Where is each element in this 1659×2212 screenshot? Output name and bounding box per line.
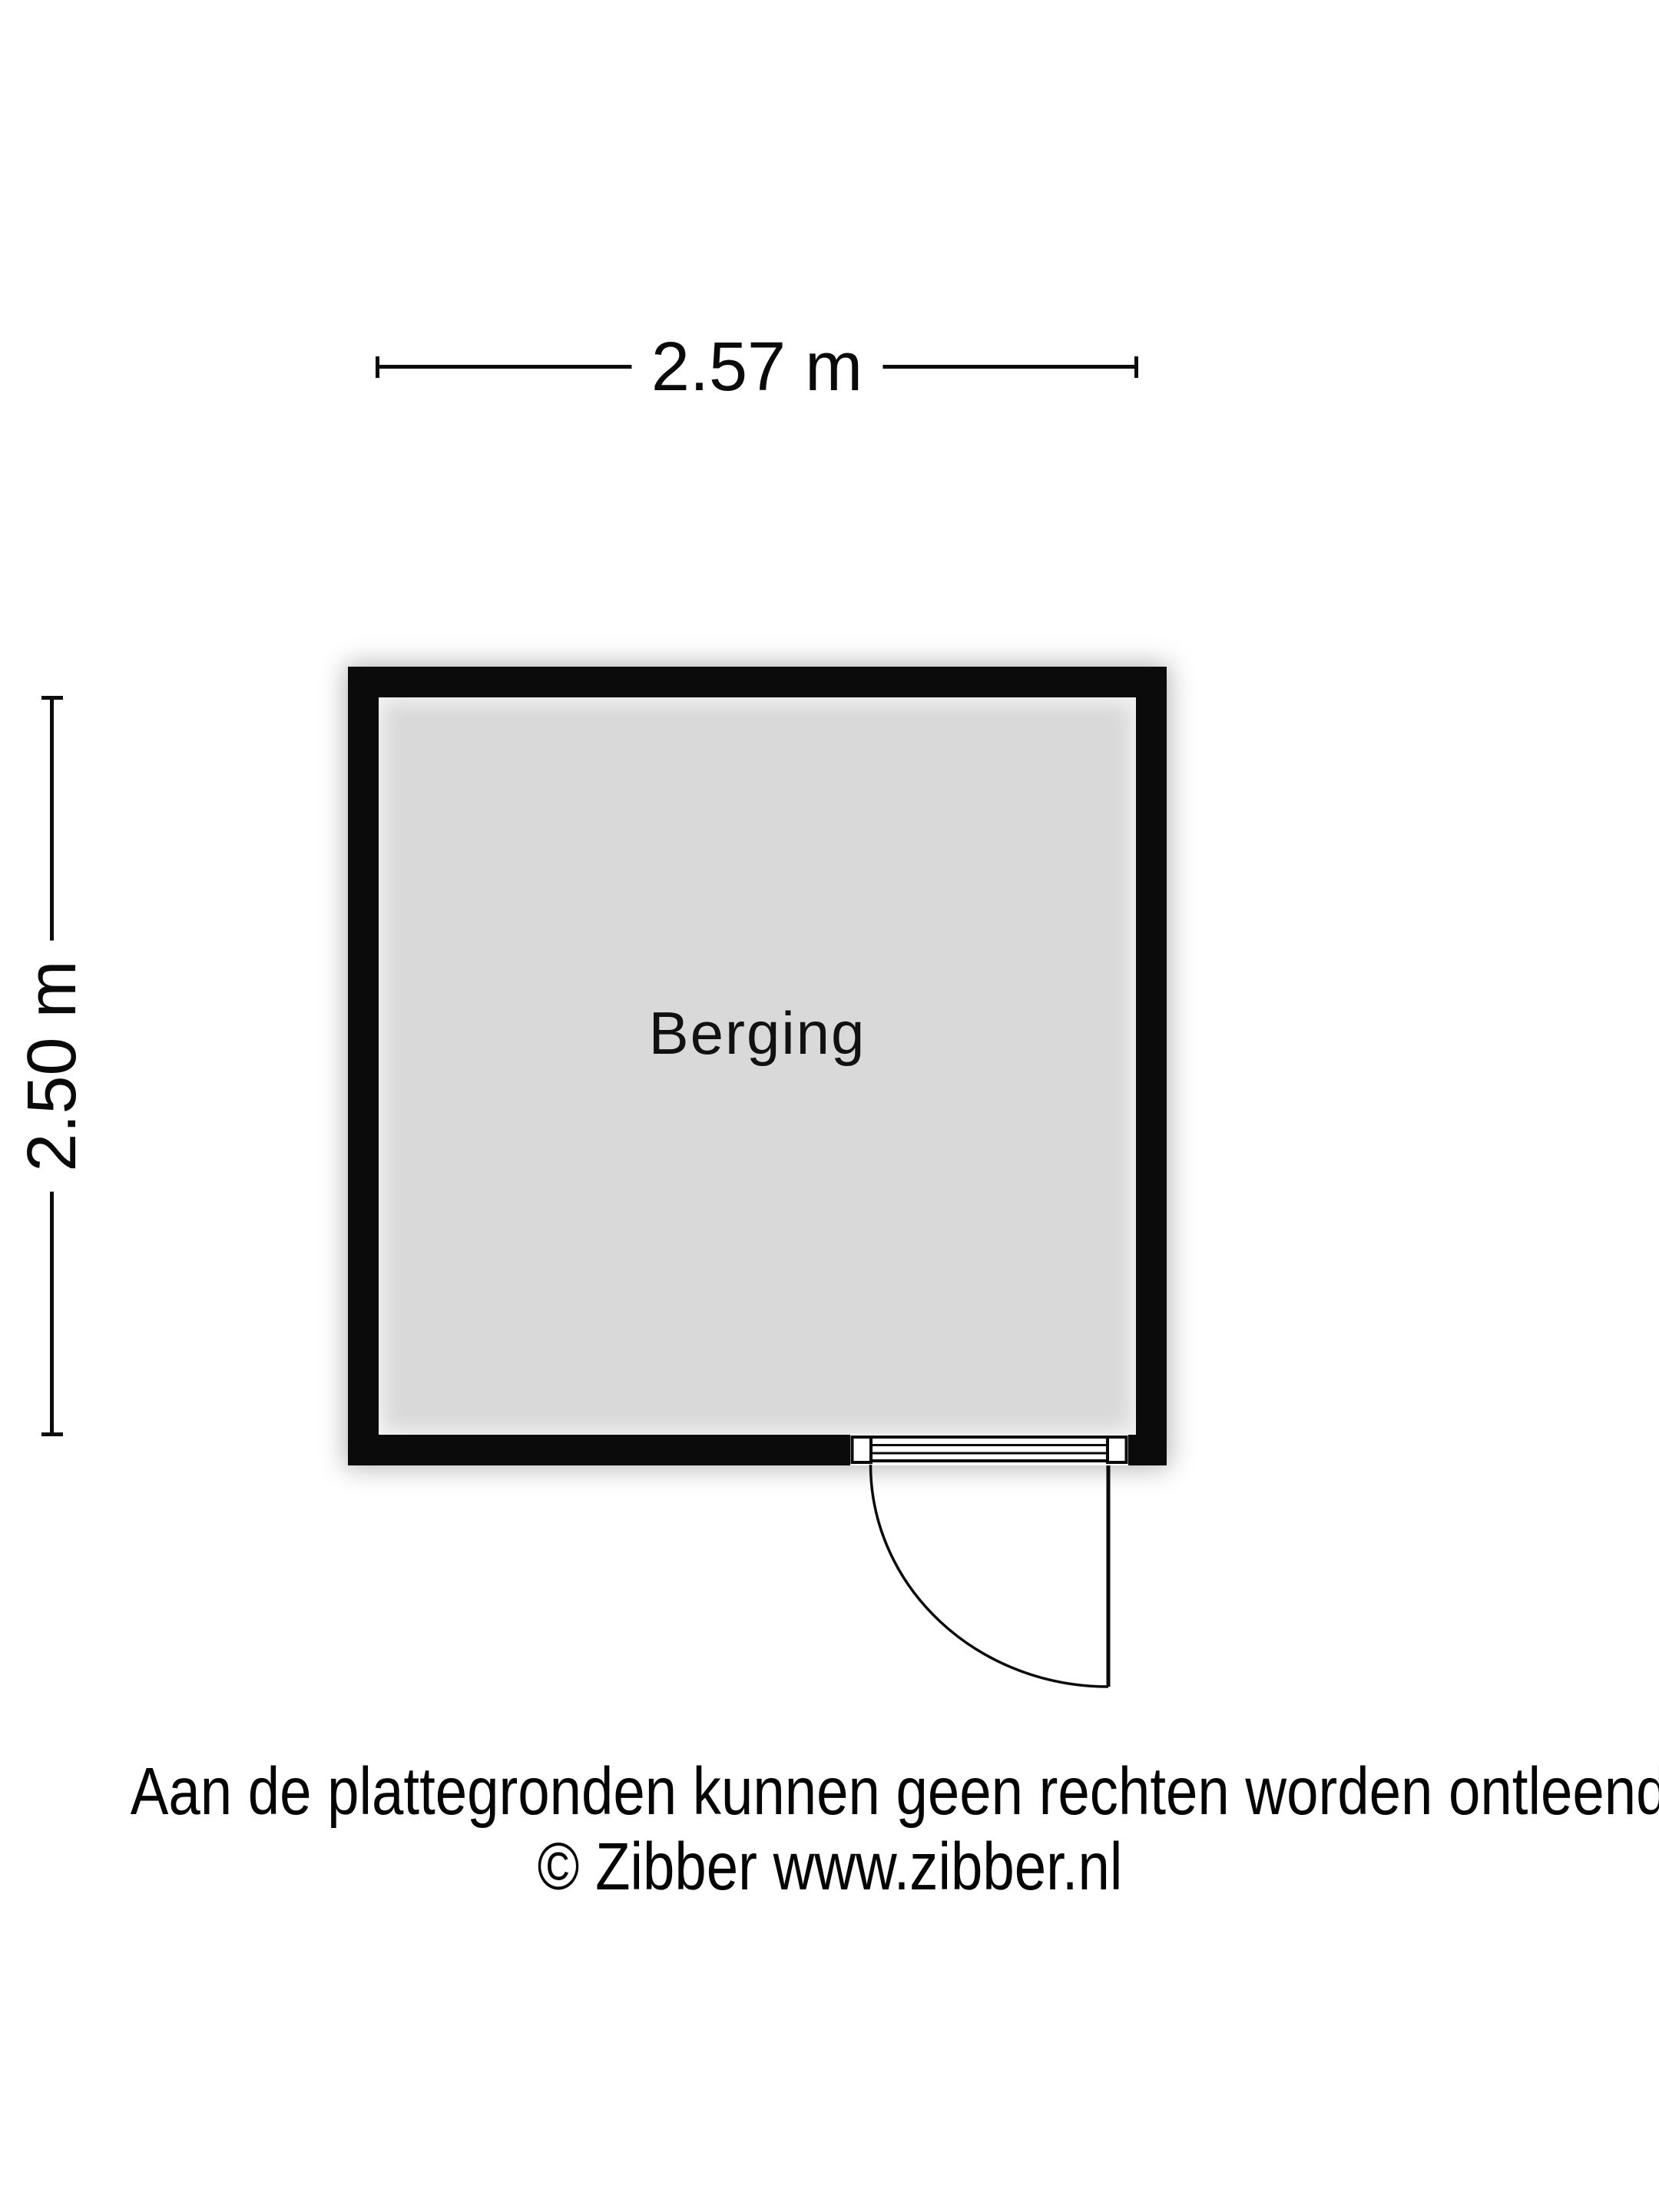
- disclaimer-text: Aan de plattegronden kunnen geen rechten…: [0, 1754, 1659, 1830]
- door-swing-arc: [871, 1465, 1109, 1687]
- room-label: Berging: [348, 998, 1167, 1068]
- dimension-tick-right: [1134, 356, 1138, 378]
- width-dimension: 2.57 m: [376, 356, 1138, 378]
- room-berging-walls: Berging: [348, 667, 1167, 1465]
- depth-dimension: 2.50 m: [31, 697, 74, 1435]
- door-jamb-left: [853, 1437, 872, 1462]
- copyright-text: © Zibber www.zibber.nl: [0, 1830, 1659, 1905]
- width-dimension-label: 2.57 m: [631, 333, 882, 402]
- door-threshold: [871, 1437, 1108, 1461]
- door: [837, 1429, 1206, 1736]
- door-jamb-right: [1108, 1437, 1127, 1462]
- footer: Aan de plattegronden kunnen geen rechten…: [0, 1754, 1659, 1905]
- dimension-tick-bottom: [41, 1432, 63, 1436]
- depth-dimension-label: 2.50 m: [18, 940, 87, 1191]
